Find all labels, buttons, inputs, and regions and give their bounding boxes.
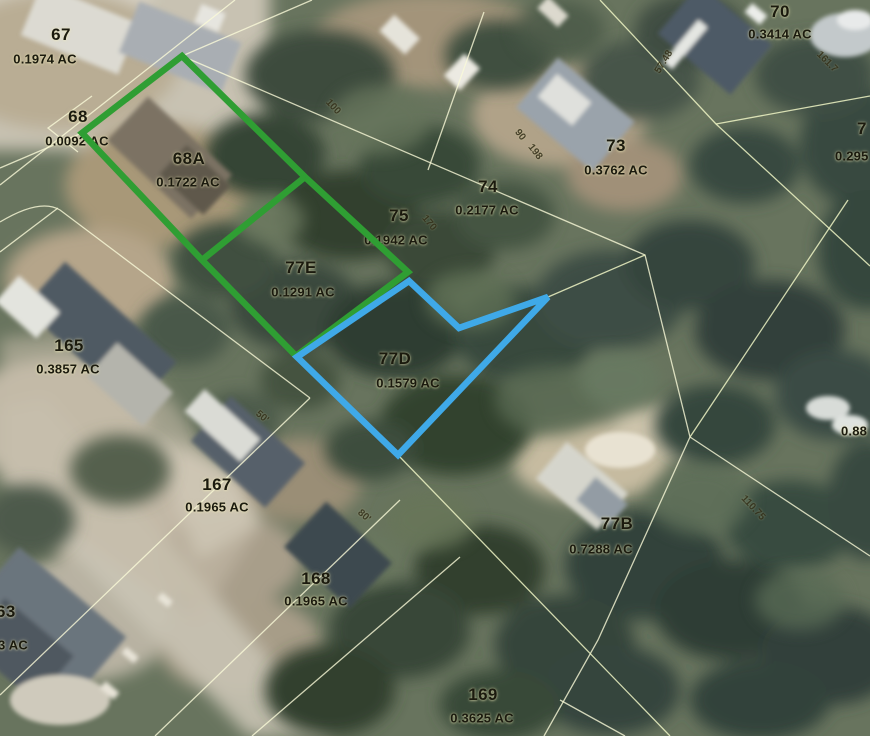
parcel-label-edge-right[interactable]: 7	[857, 119, 867, 139]
parcel-acreage-77e: 0.1291 AC	[271, 285, 334, 300]
parcel-acreage-167: 0.1965 AC	[185, 500, 248, 515]
parcel-label-77e[interactable]: 77E	[285, 258, 316, 278]
parcel-acreage-169: 0.3625 AC	[450, 711, 513, 726]
parcel-label-73[interactable]: 73	[606, 136, 626, 156]
parcel-label-edge-left[interactable]: 63	[0, 602, 16, 622]
parcel-acreage-68: 0.0092 AC	[45, 134, 108, 149]
parcel-acreage-73: 0.3762 AC	[584, 163, 647, 178]
parcel-label-165[interactable]: 165	[54, 336, 84, 356]
parcel-label-74[interactable]: 74	[478, 177, 498, 197]
parcel-acreage-68a: 0.1722 AC	[156, 175, 219, 190]
parcel-acreage-168: 0.1965 AC	[284, 594, 347, 609]
parcel-label-70[interactable]: 70	[770, 2, 790, 22]
parcel-label-67[interactable]: 67	[51, 25, 71, 45]
parcel-label-77d[interactable]: 77D	[379, 349, 411, 369]
parcel-label-75[interactable]: 75	[389, 206, 409, 226]
parcel-label-77b[interactable]: 77B	[601, 514, 633, 534]
parcel-label-167[interactable]: 167	[202, 475, 232, 495]
parcel-acreage-edge-right-2: 0.88	[841, 424, 867, 439]
parcel-acreage-edge-left: 3 AC	[0, 638, 28, 653]
parcel-acreage-70: 0.3414 AC	[748, 27, 811, 42]
parcel-label-168[interactable]: 168	[301, 569, 331, 589]
parcel-map-viewport[interactable]: 100 170 90 198 50' 80' 57.48 110.75 161.…	[0, 0, 870, 736]
parcel-acreage-77d: 0.1579 AC	[376, 376, 439, 391]
parcel-acreage-67: 0.1974 AC	[13, 52, 76, 67]
aerial-photo-basemap	[0, 0, 870, 736]
parcel-acreage-74: 0.2177 AC	[455, 203, 518, 218]
parcel-label-68a[interactable]: 68A	[173, 149, 205, 169]
parcel-label-68[interactable]: 68	[68, 107, 88, 127]
parcel-label-169[interactable]: 169	[468, 685, 498, 705]
parcel-acreage-77b: 0.7288 AC	[569, 542, 632, 557]
parcel-acreage-165: 0.3857 AC	[36, 362, 99, 377]
parcel-acreage-edge-right: 0.295	[835, 149, 869, 164]
